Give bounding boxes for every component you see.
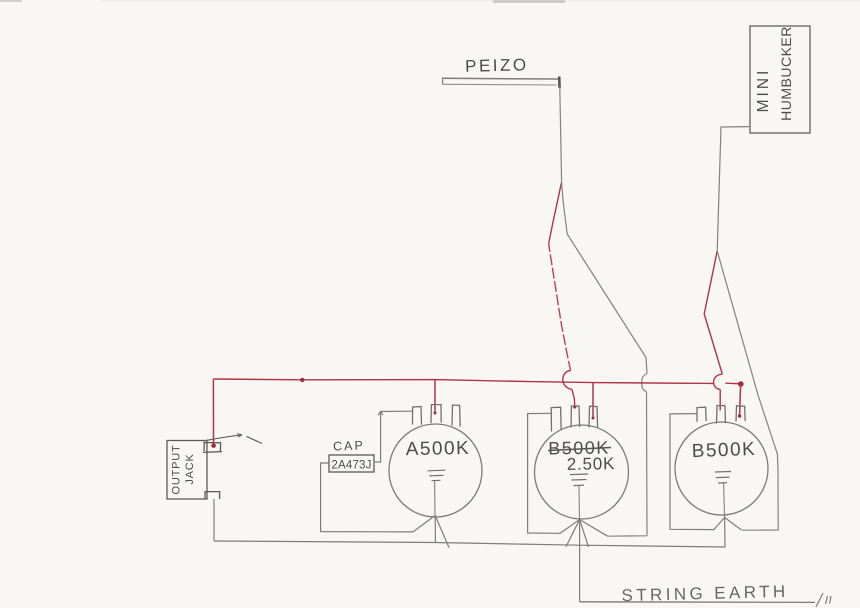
svg-text:JACK: JACK	[184, 453, 196, 484]
svg-text:A500K: A500K	[406, 438, 471, 460]
svg-text:HUMBUCKER: HUMBUCKER	[778, 26, 794, 121]
svg-text:OUTPUT: OUTPUT	[171, 444, 183, 494]
svg-text:MINI: MINI	[755, 68, 772, 113]
svg-text:2.50K: 2.50K	[567, 454, 616, 474]
svg-text:PEIZO: PEIZO	[465, 55, 529, 76]
svg-text:B500K: B500K	[691, 439, 756, 462]
svg-text:2A473J: 2A473J	[331, 460, 371, 472]
svg-text:CAP: CAP	[333, 438, 365, 453]
